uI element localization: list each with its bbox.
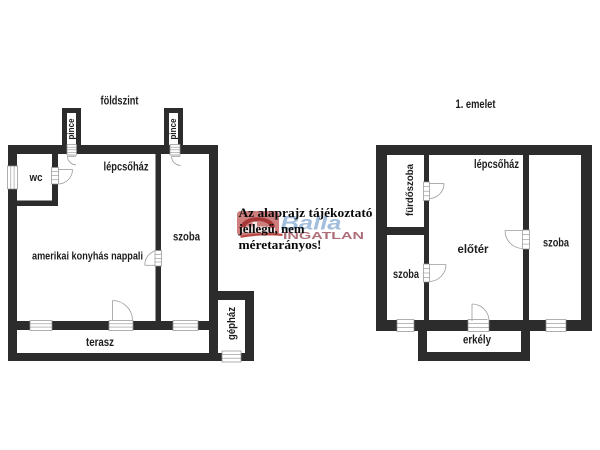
svg-text:szoba: szoba: [393, 269, 419, 281]
svg-text:jellegű, nem: jellegű, nem: [237, 222, 305, 236]
svg-text:wc: wc: [29, 172, 43, 184]
svg-text:pince: pince: [168, 119, 178, 140]
svg-text:erkély: erkély: [463, 335, 491, 347]
svg-text:szoba: szoba: [173, 231, 200, 243]
svg-text:Az alaprajz tájékoztató: Az alaprajz tájékoztató: [239, 206, 373, 220]
svg-text:pince: pince: [66, 119, 76, 140]
svg-text:lépcsőház: lépcsőház: [104, 162, 149, 174]
svg-text:amerikai konyhás nappali: amerikai konyhás nappali: [32, 251, 143, 263]
svg-text:1. emelet: 1. emelet: [456, 99, 496, 111]
svg-text:szoba: szoba: [543, 238, 569, 250]
svg-text:földszint: földszint: [101, 96, 139, 108]
svg-text:gépház: gépház: [226, 307, 238, 340]
svg-text:lépcsőház: lépcsőház: [474, 159, 519, 171]
svg-text:terasz: terasz: [86, 337, 114, 349]
svg-text:méretarányos!: méretarányos!: [239, 238, 322, 252]
svg-text:előtér: előtér: [458, 244, 490, 256]
svg-text:fürdőszoba: fürdőszoba: [404, 164, 416, 216]
